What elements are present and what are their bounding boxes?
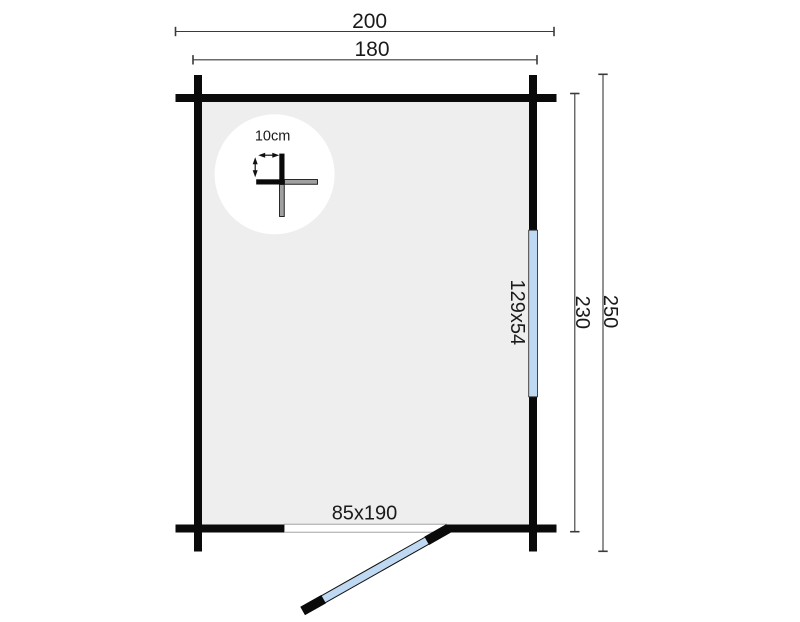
svg-text:230: 230 xyxy=(571,296,593,329)
svg-text:10cm: 10cm xyxy=(255,128,290,144)
svg-text:180: 180 xyxy=(354,38,389,61)
svg-text:250: 250 xyxy=(599,295,621,328)
svg-text:85x190: 85x190 xyxy=(332,503,398,525)
svg-text:200: 200 xyxy=(352,10,387,33)
svg-text:129x54: 129x54 xyxy=(506,279,528,345)
